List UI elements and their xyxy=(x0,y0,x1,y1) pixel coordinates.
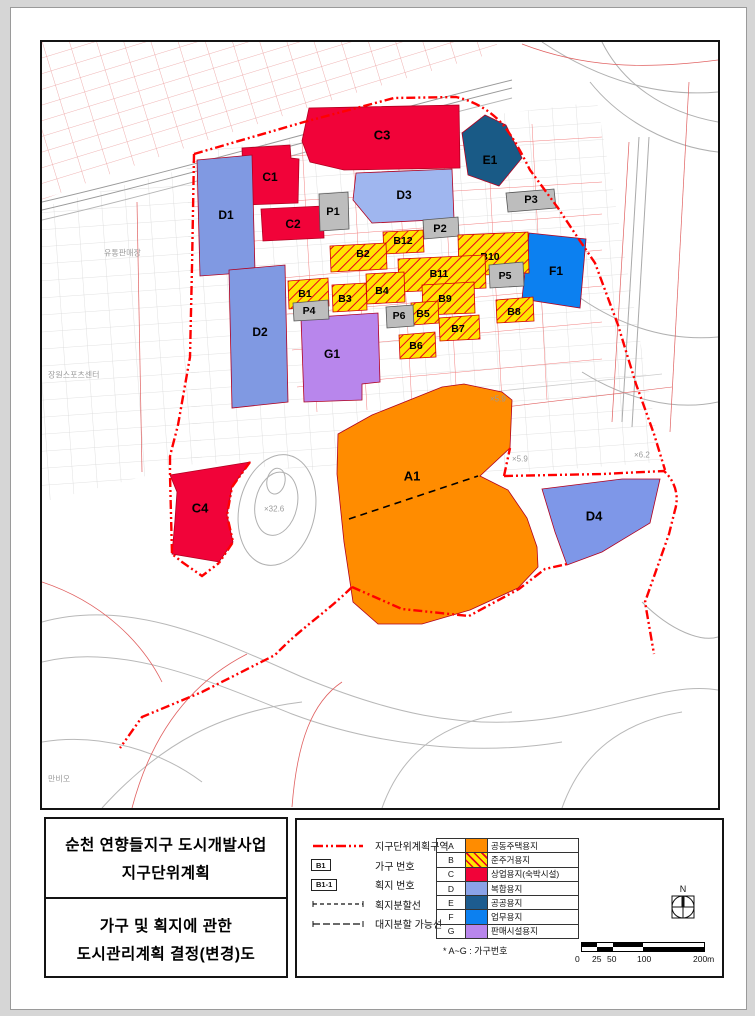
scale-label: 200m xyxy=(693,954,714,964)
zone-label-B12: B12 xyxy=(393,235,412,247)
use-name: 공공용지 xyxy=(488,896,579,910)
zone-label-B4: B4 xyxy=(375,285,389,297)
zone-label-C3: C3 xyxy=(374,128,391,143)
north-arrow-icon: N xyxy=(669,884,697,927)
zone-label-D2: D2 xyxy=(252,325,268,339)
scale-label: 50 xyxy=(607,954,616,964)
use-name: 공동주택용지 xyxy=(488,839,579,853)
use-code: E xyxy=(437,896,466,910)
zone-label-D3: D3 xyxy=(396,188,412,202)
scale-label: 25 xyxy=(592,954,601,964)
use-color-swatch xyxy=(466,896,488,910)
title-block: 순천 연향들지구 도시개발사업 지구단위계획 가구 및 획지에 관한 도시관리계… xyxy=(44,817,288,978)
project-title-line1: 순천 연향들지구 도시개발사업 xyxy=(65,833,267,855)
zone-label-B8: B8 xyxy=(507,306,521,318)
map-panel: C3E1C1C2D1D2D3P1P2P3F1G1B12B2B10B11B1B3B… xyxy=(40,40,720,810)
zone-label-B1: B1 xyxy=(298,288,312,300)
use-color-swatch xyxy=(466,839,488,853)
zone-label-P4: P4 xyxy=(303,305,316,317)
zone-label-D1: D1 xyxy=(218,208,234,222)
background-label: 유통판매장 xyxy=(104,248,141,258)
background-label: ×32.6 xyxy=(264,505,285,514)
drawing-title-line2: 도시관리계획 결정(변경)도 xyxy=(77,942,256,964)
zone-label-F1: F1 xyxy=(549,264,563,278)
use-name: 복합용지 xyxy=(488,881,579,895)
zone-label-P3: P3 xyxy=(524,194,537,206)
background-label: 만비오 xyxy=(48,775,70,784)
legend-item-district-boundary: 지구단위계획구역 xyxy=(311,836,449,856)
planning-document-page: { "page": { "title_block": { "line1": "순… xyxy=(0,0,755,1016)
scale-bar-labels: 0 25 50 100 200m xyxy=(575,954,715,966)
scale-bar-segment xyxy=(582,947,597,951)
parcel-number-chip: B1-1 xyxy=(311,879,337,891)
background-label: ×5.9 xyxy=(512,455,528,464)
zone-label-B9: B9 xyxy=(438,293,452,305)
lot-division-symbol-icon xyxy=(311,919,367,929)
block-number-chip-icon: B1 xyxy=(311,859,367,871)
legend-label: 획지분할선 xyxy=(375,897,421,912)
use-code: D xyxy=(437,881,466,895)
zone-label-B2: B2 xyxy=(356,248,370,260)
zone-label-B6: B6 xyxy=(409,340,423,352)
legend-item-block-number: B1 가구 번호 xyxy=(311,856,449,876)
background-label: ×5.9 xyxy=(490,395,506,404)
use-name: 판매시설용지 xyxy=(488,924,579,938)
document-page: C3E1C1C2D1D2D3P1P2P3F1G1B12B2B10B11B1B3B… xyxy=(10,7,747,1010)
legend-item-parcel-division: 획지분할선 xyxy=(311,895,449,915)
legend-block: 지구단위계획구역 B1 가구 번호 B1-1 획지 번호 획지분할선 xyxy=(295,818,724,978)
zone-label-C4: C4 xyxy=(192,501,209,516)
legend-label: 획지 번호 xyxy=(375,877,415,892)
zone-label-B3: B3 xyxy=(338,293,352,305)
zone-label-C2: C2 xyxy=(285,217,301,231)
use-table-row-D: D복합용지 xyxy=(437,881,579,895)
zone-A1 xyxy=(337,384,538,624)
use-code: A xyxy=(437,839,466,853)
scale-label: 100 xyxy=(637,954,651,964)
district-boundary-symbol-icon xyxy=(311,841,367,851)
use-table-row-F: F업무용지 xyxy=(437,910,579,924)
project-title-line2: 지구단위계획 xyxy=(122,861,211,883)
scale-bar-segment xyxy=(643,947,704,951)
use-code: G xyxy=(437,924,466,938)
zone-label-P1: P1 xyxy=(326,206,339,218)
legend-item-lot-division: 대지분할 가능선 xyxy=(311,914,449,934)
scale-bar-segment xyxy=(597,947,612,951)
zone-label-B7: B7 xyxy=(451,323,465,335)
background-label: ×6.2 xyxy=(634,451,650,460)
background-label: 장원스포츠센터 xyxy=(48,370,100,380)
use-color-swatch xyxy=(466,924,488,938)
legend-item-parcel-number: B1-1 획지 번호 xyxy=(311,875,449,895)
zone-label-P6: P6 xyxy=(393,310,406,322)
line-symbol-legend: 지구단위계획구역 B1 가구 번호 B1-1 획지 번호 획지분할선 xyxy=(311,836,449,934)
drawing-title-line1: 가구 및 획지에 관한 xyxy=(100,914,233,936)
legend-label: 대지분할 가능선 xyxy=(375,916,442,931)
use-code: C xyxy=(437,867,466,881)
scale-bar xyxy=(581,942,705,952)
north-label: N xyxy=(680,884,687,894)
parcel-number-chip-icon: B1-1 xyxy=(311,879,367,891)
block-number-chip: B1 xyxy=(311,859,331,871)
project-title: 순천 연향들지구 도시개발사업 지구단위계획 xyxy=(46,819,286,899)
legend-footnote: * A~G : 가구번호 xyxy=(443,944,507,957)
use-color-swatch xyxy=(466,867,488,881)
zone-label-A1: A1 xyxy=(404,469,421,484)
use-color-swatch xyxy=(466,910,488,924)
legend-label: 가구 번호 xyxy=(375,858,415,873)
zone-label-B5: B5 xyxy=(416,308,430,320)
use-table-row-C: C상업용지(숙박시설) xyxy=(437,867,579,881)
zone-label-P5: P5 xyxy=(499,270,512,282)
use-code: F xyxy=(437,910,466,924)
district-plan-map: C3E1C1C2D1D2D3P1P2P3F1G1B12B2B10B11B1B3B… xyxy=(42,42,718,808)
zone-label-P2: P2 xyxy=(433,223,446,235)
use-table-row-E: E공공용지 xyxy=(437,896,579,910)
zone-label-G1: G1 xyxy=(324,347,340,361)
zone-label-D4: D4 xyxy=(586,509,603,524)
use-table-row-B: B준주거용지 xyxy=(437,853,579,867)
zone-label-C1: C1 xyxy=(262,170,278,184)
use-name: 준주거용지 xyxy=(488,853,579,867)
zone-label-E1: E1 xyxy=(483,153,498,167)
use-table-row-A: A공동주택용지 xyxy=(437,839,579,853)
scale-label: 0 xyxy=(575,954,580,964)
land-use-color-table: A공동주택용지B준주거용지C상업용지(숙박시설)D복합용지E공공용지F업무용지G… xyxy=(436,838,579,939)
use-code: B xyxy=(437,853,466,867)
use-name: 업무용지 xyxy=(488,910,579,924)
zone-label-B11: B11 xyxy=(430,268,449,280)
drawing-title: 가구 및 획지에 관한 도시관리계획 결정(변경)도 xyxy=(46,899,286,978)
parcel-division-symbol-icon xyxy=(311,899,367,909)
use-name: 상업용지(숙박시설) xyxy=(488,867,579,881)
use-table-row-G: G판매시설용지 xyxy=(437,924,579,938)
scale-bar-segment xyxy=(613,947,644,951)
use-color-swatch xyxy=(466,881,488,895)
use-color-swatch xyxy=(466,853,488,867)
